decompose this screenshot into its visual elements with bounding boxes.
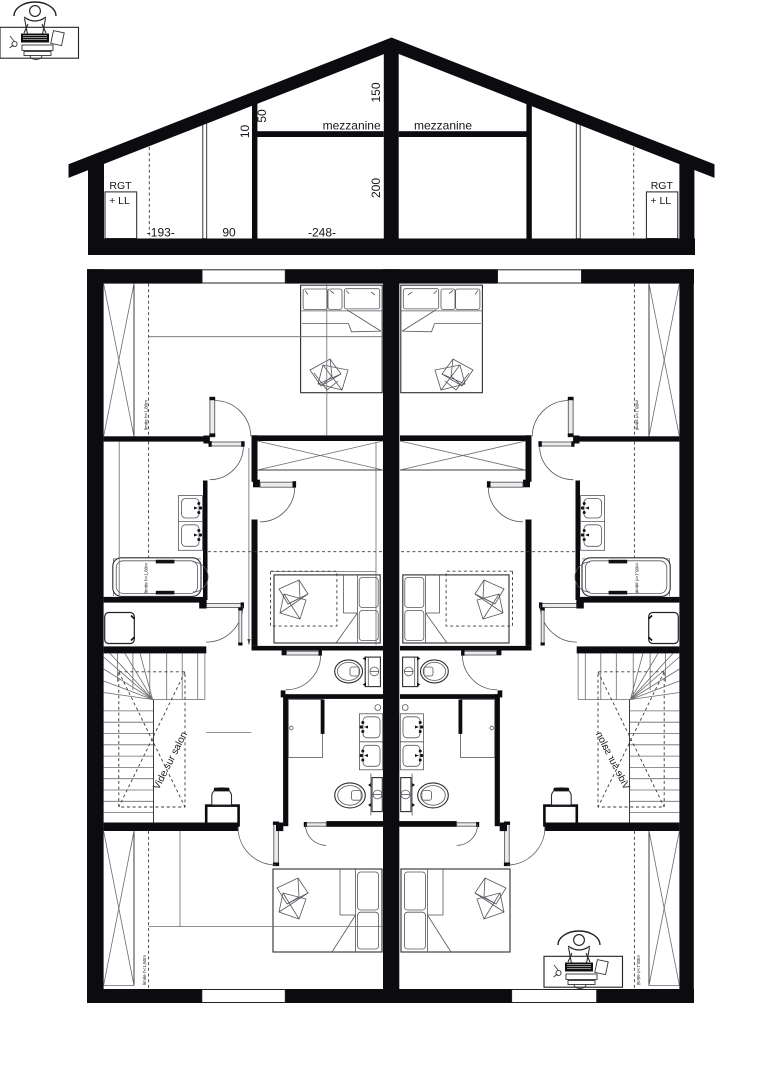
svg-text:limite h<1,80m: limite h<1,80m xyxy=(143,563,148,593)
svg-text:50: 50 xyxy=(255,109,269,123)
svg-text:200: 200 xyxy=(369,178,383,198)
svg-text:mezzanine: mezzanine xyxy=(414,119,472,133)
svg-text:10: 10 xyxy=(238,125,252,139)
svg-text:mezzanine: mezzanine xyxy=(323,119,381,133)
svg-text:-193-: -193- xyxy=(147,226,175,240)
svg-text:limite h<1,80m: limite h<1,80m xyxy=(142,955,147,985)
svg-text:limite h<1,80m: limite h<1,80m xyxy=(143,400,148,430)
svg-text:90: 90 xyxy=(222,226,236,240)
svg-text:RGT: RGT xyxy=(651,180,674,192)
svg-text:+ LL: + LL xyxy=(109,195,130,207)
svg-text:+ LL: + LL xyxy=(650,195,671,207)
svg-text:RGT: RGT xyxy=(109,180,132,192)
svg-text:-248-: -248- xyxy=(308,226,336,240)
svg-text:150: 150 xyxy=(369,82,383,102)
